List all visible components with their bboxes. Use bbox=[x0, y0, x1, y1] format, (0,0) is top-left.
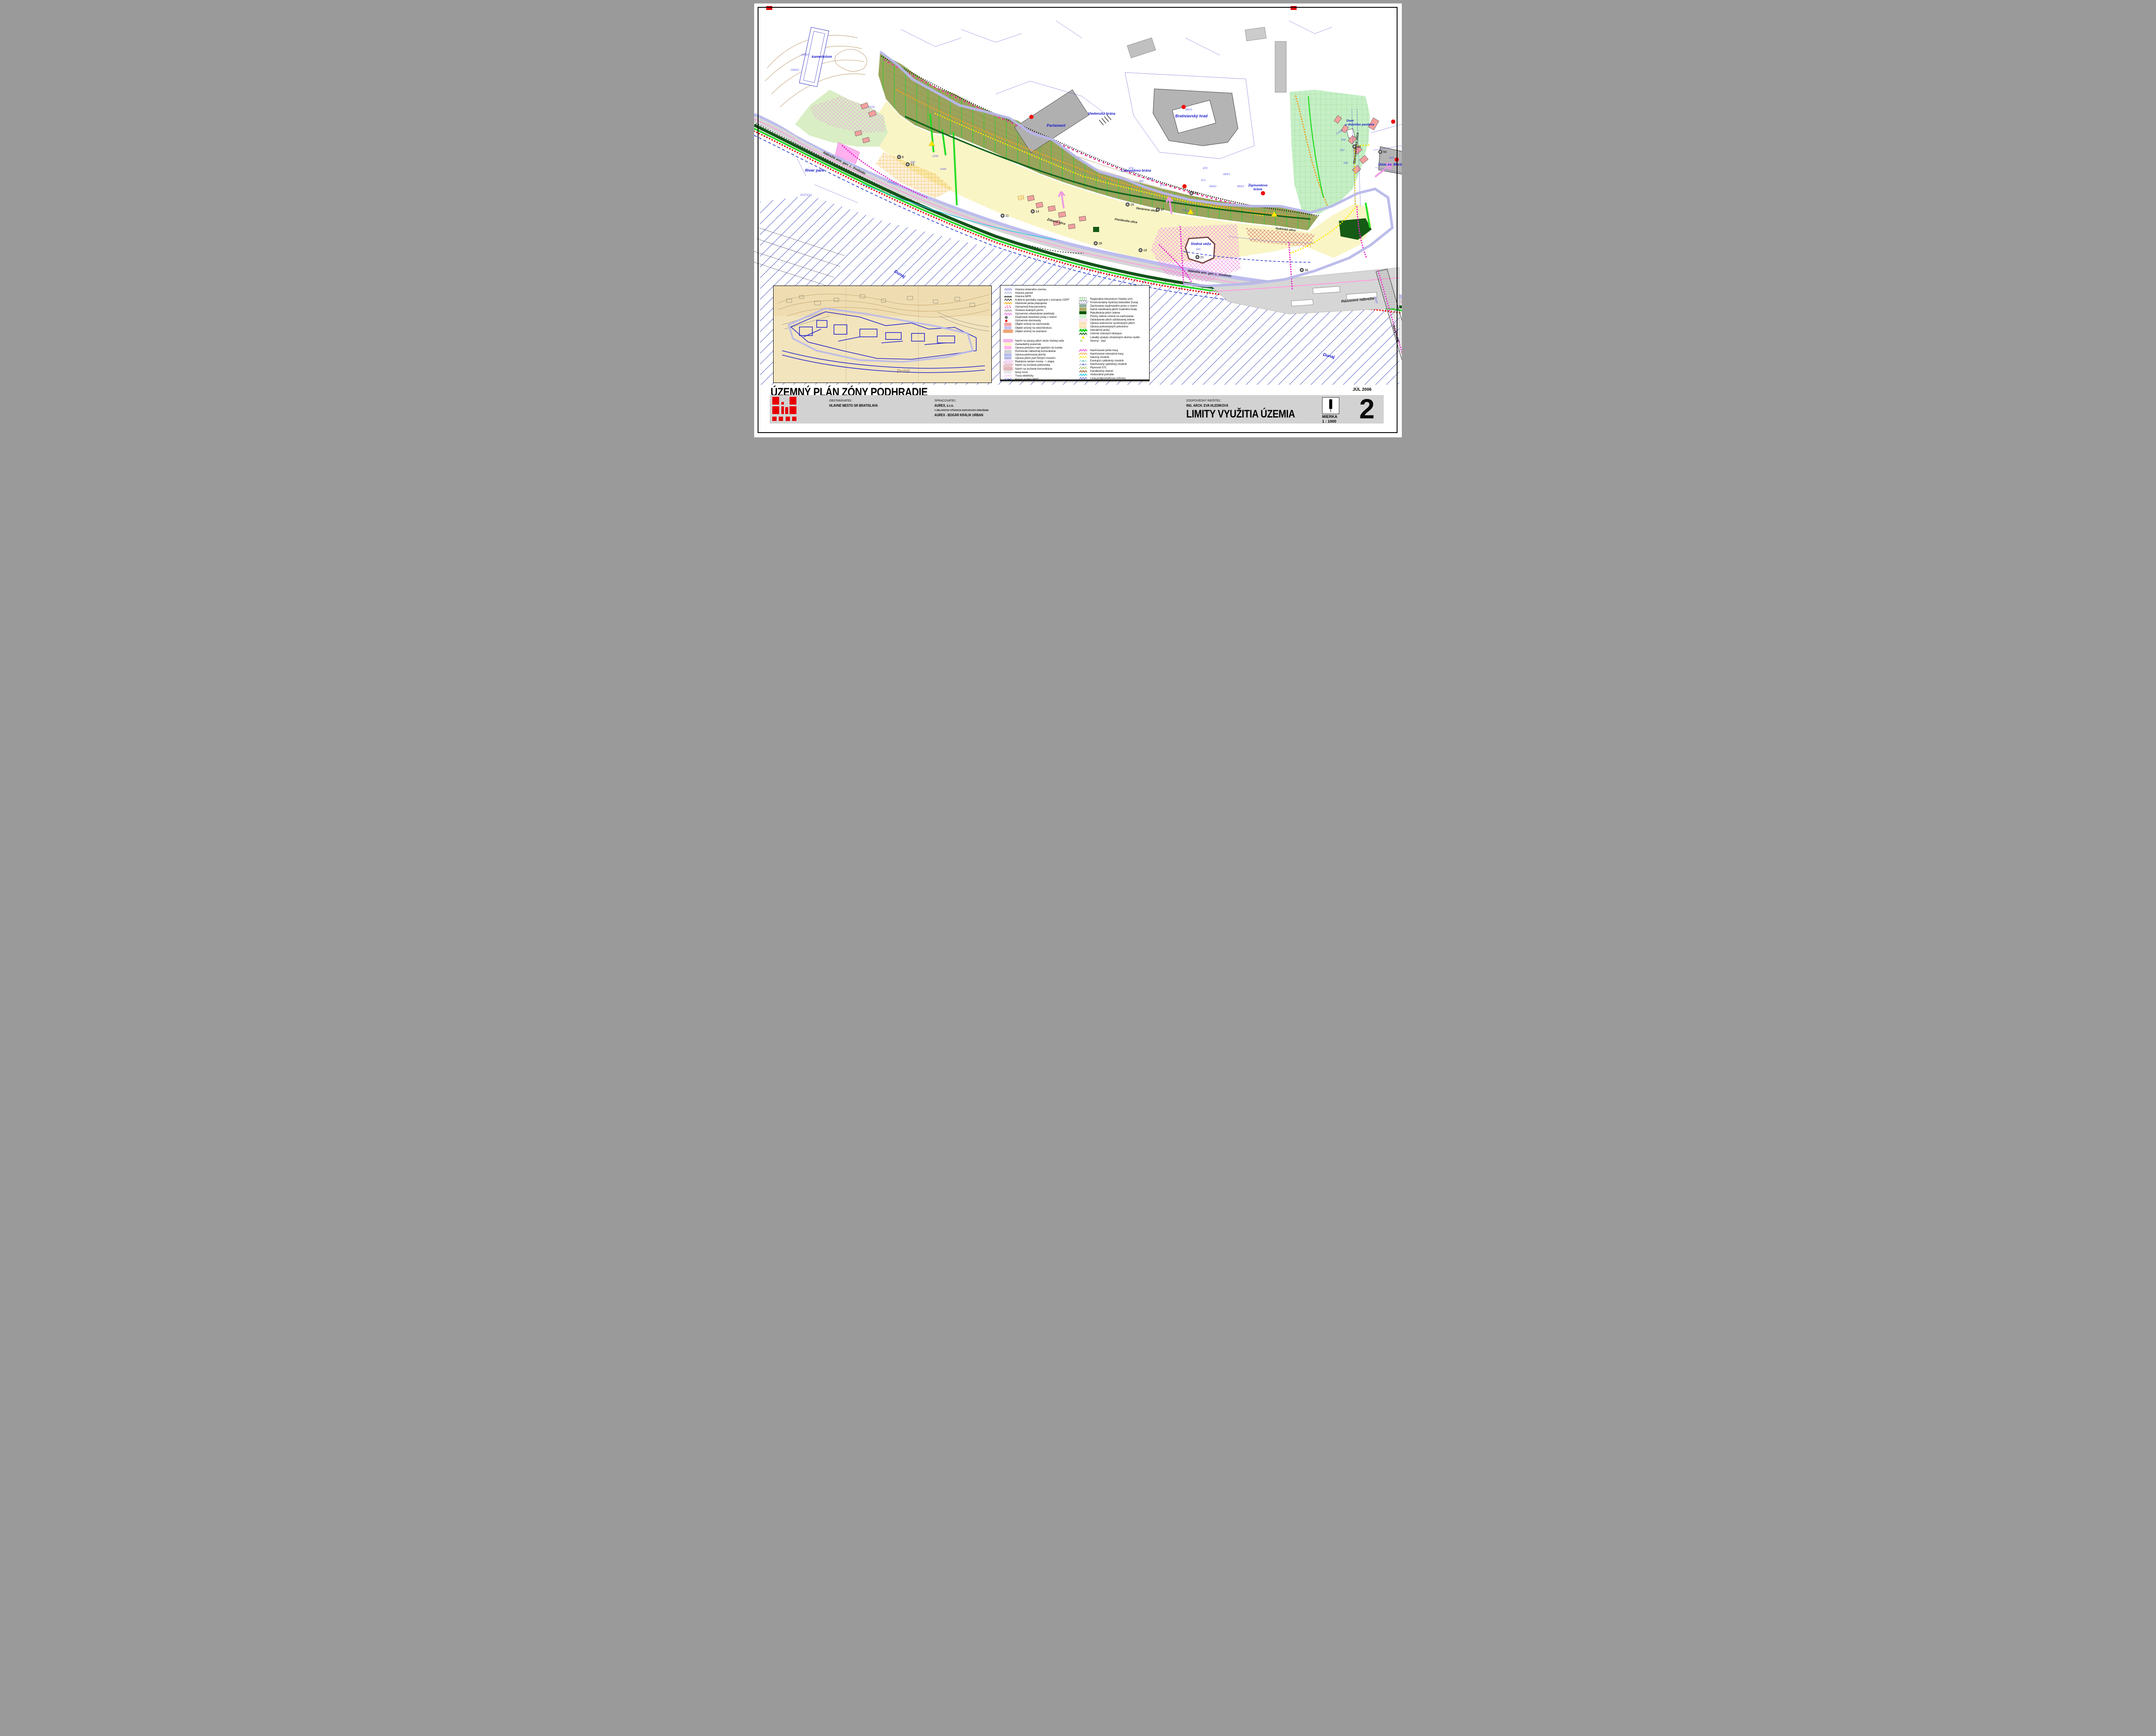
green-patch-small bbox=[1093, 227, 1099, 232]
legend-column-1: Hranica riešeného územiaHranice parcielH… bbox=[1003, 288, 1075, 381]
parcel-number: 860/1 bbox=[1185, 108, 1193, 111]
legend-swatch-tri bbox=[1078, 336, 1088, 339]
map-label: Parlament bbox=[1047, 123, 1066, 128]
legend-swatch-ring bbox=[1003, 316, 1013, 319]
dominant-dot bbox=[1029, 115, 1034, 119]
legend-item-label: Rekultivácia plôch zelene bbox=[1090, 311, 1120, 314]
legend-swatch-grid bbox=[1003, 370, 1013, 374]
legend-item-label: Územie vzácnych biotopov bbox=[1090, 332, 1122, 335]
legend-swatch-dotszz bbox=[1078, 352, 1088, 355]
legend-swatch-zzdot bbox=[1078, 359, 1088, 363]
scale-label: MIERKA bbox=[1322, 414, 1338, 419]
svg-text:21: 21 bbox=[1200, 255, 1204, 259]
legend-item-label: Návrh na zrušenie komunikácie bbox=[1015, 367, 1052, 370]
legend-item: Úprava poloverejných priestorov bbox=[1078, 325, 1147, 329]
map-label: u dobrého pastiera bbox=[1345, 122, 1374, 126]
contractor-value-2: AUREX - BOGÁR KRÁLIK URBAN bbox=[934, 413, 983, 417]
legend-item-label: Stromy - stav bbox=[1090, 339, 1106, 342]
legend-item: Lokality výskytu chránených druhov rastl… bbox=[1078, 336, 1147, 339]
legend-item-label: Hranica MPR bbox=[1015, 295, 1031, 298]
legend-item-label: Nosný systém MHD bbox=[1015, 378, 1039, 381]
legend-swatch-zzthin2 bbox=[1078, 377, 1088, 380]
legend-item-label: Úprava poloverejných priestorov bbox=[1090, 325, 1128, 328]
legend-item: Hranica riešeného územia bbox=[1003, 288, 1075, 291]
legend-item-label: Úprava priestoru nad vjazdom do tunela bbox=[1015, 346, 1062, 349]
parcel-number: 869/1 bbox=[1223, 173, 1231, 176]
legend-item-label: Významné dominanty bbox=[1015, 319, 1041, 322]
legend-swatch-zz bbox=[1003, 309, 1013, 312]
legend-column-2: Regionálne biocentrum Hradný vrchProvinc… bbox=[1078, 297, 1147, 380]
legend-item: Hranica MPR bbox=[1003, 295, 1075, 298]
map-label: brána bbox=[1253, 187, 1262, 191]
legend-swatch-dashrow bbox=[1003, 305, 1013, 309]
legend-swatch-trirow bbox=[1003, 295, 1013, 298]
legend-swatch-fill bbox=[1078, 311, 1088, 314]
legend-item-label: Navrhované pešie trasy bbox=[1090, 349, 1118, 352]
legend-item: Existujúci cyklistický chodník bbox=[1078, 359, 1147, 363]
parcel-number: 990 bbox=[911, 161, 915, 164]
legend-item: Historické pešia prepojenia bbox=[1003, 301, 1075, 305]
legend-item: Návrh na zrušenie komunikácie bbox=[1003, 367, 1075, 370]
legend-item: Stromy - stav bbox=[1078, 339, 1147, 342]
legend-swatch-dotszz bbox=[1078, 348, 1088, 352]
legend-swatch-vl bbox=[1078, 322, 1088, 325]
legend-item: Významné urbanistické priehľady bbox=[1003, 312, 1075, 316]
legend-item: Hranice parciel bbox=[1003, 291, 1075, 295]
legend-item: Navrhované pešie trasy bbox=[1078, 348, 1147, 352]
legend-item: Návrh na úpravy plôch okolo Vodnej veže bbox=[1003, 339, 1075, 342]
legend-swatch-zz bbox=[1003, 298, 1013, 301]
legend-swatch-xh bbox=[1003, 367, 1013, 370]
parcel-number: 596 bbox=[1344, 162, 1348, 165]
legend-item-label: Rozšírenie nábrežnej komunikácie bbox=[1015, 350, 1056, 353]
legend-item: Interakčné prvky bbox=[1078, 329, 1147, 332]
legend-item-label: Sústava skalných pivníc bbox=[1015, 309, 1044, 312]
legend-item-label: Odstránenie plôch udržiavanej zelene bbox=[1090, 318, 1134, 321]
legend-swatch-zzdash bbox=[1003, 374, 1013, 377]
legend-item-label: Plynovod STL bbox=[1090, 366, 1107, 369]
dominant-dot bbox=[1261, 191, 1265, 195]
legend-item-label: Plochy zelene určené na zachovanie bbox=[1090, 315, 1134, 318]
legend-item: Úprava plôch pod Novým mostom bbox=[1003, 357, 1075, 360]
legend-swatch-xh bbox=[1078, 318, 1088, 322]
legend-swatch-zzdash bbox=[1078, 366, 1088, 370]
legend-item: Zastaviteľný pozemok bbox=[1003, 342, 1075, 346]
legend-item: Sústava skalných pivníc bbox=[1003, 309, 1075, 312]
legend-item: Úprava extenzívne využívaných plôch bbox=[1078, 322, 1147, 325]
drawing-title: LIMITY VYUŽITIA ÚZEMIA bbox=[1186, 408, 1295, 421]
map-label: Leopoldova brána bbox=[1122, 169, 1151, 173]
svg-text:50: 50 bbox=[1383, 150, 1387, 154]
legend-swatch-zzdot bbox=[1078, 363, 1088, 366]
title-block: ÚZEMNÝ PLÁN ZÓNY PODHRADIE JÚL 2006 OBST… bbox=[754, 385, 1402, 437]
legend-swatch-dot bbox=[1003, 319, 1013, 323]
parcel-number: 1044 bbox=[940, 168, 946, 171]
parcel-number: 871 bbox=[1201, 179, 1206, 182]
parcel-number: 880 bbox=[1139, 180, 1144, 183]
legend-item-label: Významná línia panorámy bbox=[1015, 305, 1046, 308]
map-label: Žigmundova bbox=[1248, 183, 1268, 187]
legend-item-label: Provincionálny hydrický biokoridor Dunaj bbox=[1090, 301, 1138, 304]
svg-text:47: 47 bbox=[1161, 208, 1164, 212]
legend-swatch-fill bbox=[1078, 304, 1088, 308]
legend-item-label: Objekt určený na rekonštrukciu bbox=[1015, 326, 1052, 330]
legend-item-label: Regionálne biocentrum Hradný vrch bbox=[1090, 298, 1133, 301]
legend-item-label: Zaujímavé historické prvky v území bbox=[1015, 316, 1056, 319]
legend-item: Navrhovaný cyklistický chodník bbox=[1078, 363, 1147, 366]
responsible-label: ZODPOVEDNÝ RIEŠITEĽ: bbox=[1186, 399, 1221, 402]
svg-text:11: 11 bbox=[1006, 214, 1009, 218]
map-label: Viedenská brána bbox=[1088, 112, 1116, 116]
legend-swatch-zz bbox=[1078, 373, 1088, 377]
registration-mark bbox=[1291, 6, 1297, 10]
legend-item: Náučný chodník bbox=[1078, 355, 1147, 359]
legend-item-label: Objekt určený na zachovanie bbox=[1015, 323, 1050, 326]
legend-swatch-fill bbox=[1003, 326, 1013, 330]
legend-swatch-zz bbox=[1003, 288, 1013, 291]
legend-swatch-dotszz bbox=[1078, 355, 1088, 359]
map-label: Dom bbox=[1347, 119, 1354, 122]
map-label: Bratislavský hrad bbox=[1175, 114, 1208, 118]
parcel-number: 869/3 bbox=[1237, 185, 1244, 188]
legend-item: Územie vzácnych biotopov bbox=[1078, 332, 1147, 336]
legend-item-label: Zachovanie zaujímavého prvku v území bbox=[1090, 305, 1137, 308]
legend-swatch-fill bbox=[1003, 342, 1013, 346]
legend-item-label: Hranice parciel bbox=[1015, 292, 1033, 295]
parcel-number: 545 bbox=[1196, 248, 1201, 251]
numbered-marker: 8 bbox=[897, 155, 903, 159]
legend-item-label: Existujúci cyklistický chodník bbox=[1090, 359, 1124, 362]
legend-item: Nosný systém MHD bbox=[1003, 377, 1075, 381]
legend-swatch-fill bbox=[1003, 346, 1013, 349]
legend-item: Zaujímavé historické prvky v území bbox=[1003, 316, 1075, 319]
legend-item-label: Interakčné prvky bbox=[1090, 329, 1109, 332]
legend-swatch-fill bbox=[1078, 315, 1088, 318]
legend-item: Nutná rekultivácia plôch hradného brala bbox=[1078, 308, 1147, 311]
map-label: Dóm sv. Martina bbox=[1378, 162, 1402, 166]
legend-item-label: Návrh na zrušenie parkoviska bbox=[1015, 364, 1050, 367]
legend-item-label: Nový most bbox=[1015, 371, 1028, 374]
parcel-number: 1040 bbox=[932, 155, 939, 158]
parcel-number: 598 bbox=[1341, 138, 1346, 141]
svg-text:14: 14 bbox=[1036, 210, 1039, 213]
legend-swatch-zz bbox=[1078, 370, 1088, 373]
dominant-dot bbox=[1391, 119, 1395, 124]
parcel-number: 883 bbox=[1149, 177, 1153, 180]
legend-item: Zachovanie zaujímavého prvku v území bbox=[1078, 304, 1147, 308]
historic-map-inset: Dunaj bbox=[773, 286, 992, 383]
legend-item: Trasa električky bbox=[1003, 374, 1075, 377]
legend-swatch-ringsm bbox=[1078, 339, 1088, 342]
parcel-number: 22372/13 bbox=[799, 194, 812, 197]
legend-item-label: Návrh na úpravy plôch okolo Vodnej veže bbox=[1015, 339, 1064, 342]
parcel-number: 1018 bbox=[868, 106, 875, 109]
plan-sheet: 8131114164749182821384350 1669/31669/222… bbox=[754, 3, 1402, 437]
bratislava-logo bbox=[772, 397, 797, 422]
legend-item-label: Navrhované rekreačné trasy bbox=[1090, 352, 1124, 355]
map-label: kameňolom bbox=[812, 54, 832, 59]
legend-item-label: Kultúrne pamiatky zapísané v zozname ÚZP… bbox=[1015, 298, 1069, 301]
legend-item: Provincionálny hydrický biokoridor Dunaj bbox=[1078, 301, 1147, 304]
legend-swatch-zz bbox=[1003, 291, 1013, 295]
legend-item-label: Úprava extenzívne využívaných plôch bbox=[1090, 322, 1135, 325]
legend-item: Úprava priestoru nad vjazdom do tunela bbox=[1003, 346, 1075, 349]
legend-item: Plynovod STL bbox=[1078, 366, 1147, 370]
legend-item: Objekt určený na zachovanie bbox=[1003, 323, 1075, 326]
legend-item: Významná línia panorámy bbox=[1003, 305, 1075, 308]
svg-text:28: 28 bbox=[1099, 242, 1102, 245]
legend-item-label: Hranica riešeného územia bbox=[1015, 288, 1046, 291]
parcel-number: 1669/3 bbox=[801, 53, 809, 57]
legend-item-label: Línia protipovodňovej ochrany bbox=[1090, 377, 1125, 380]
legend-item: Navrhované rekreačné trasy bbox=[1078, 352, 1147, 355]
legend-swatch-zz2 bbox=[1003, 312, 1013, 316]
legend-swatch-zz bbox=[1078, 329, 1088, 332]
legend-item-label: Náučný chodník bbox=[1090, 356, 1109, 359]
legend-item: Úprava parkovacej plochy bbox=[1003, 353, 1075, 357]
legend-swatch-dl bbox=[1003, 360, 1013, 364]
legend-item-label: Trasa električky bbox=[1015, 374, 1034, 377]
registration-mark bbox=[766, 6, 772, 10]
legend-item-label: Navrhovaný cyklistický chodník bbox=[1090, 363, 1127, 366]
legend-item-label: Úprava parkovacej plochy bbox=[1015, 353, 1046, 356]
contractor-note: V ZMLUVNÝCH VZŤAHOCH ZASTUPUJÚCI ZDRUŽEN… bbox=[934, 409, 989, 412]
historic-map-drawing bbox=[774, 286, 991, 383]
legend-item: Odstránenie plôch udržiavanej zelene bbox=[1078, 318, 1147, 322]
legend-swatch-fill bbox=[1078, 308, 1088, 311]
legend-item-label: Nutná rekultivácia plôch hradného brala bbox=[1090, 308, 1137, 311]
legend-swatch-hl bbox=[1003, 357, 1013, 360]
svg-text:49: 49 bbox=[1194, 191, 1198, 195]
legend-item: Kultúrne pamiatky zapísané v zozname ÚZP… bbox=[1003, 298, 1075, 301]
svg-text:8: 8 bbox=[902, 155, 904, 159]
legend-swatch-filldl bbox=[1078, 301, 1088, 304]
client-label: OBSTARÁVATEĽ: bbox=[829, 399, 852, 402]
legend-item: Vodovodné potrubie bbox=[1078, 373, 1147, 377]
legend-swatch-dl bbox=[1003, 364, 1013, 367]
title-block-bar: OBSTARÁVATEĽ: HLAVNÉ MESTO SR BRATISLAVA… bbox=[770, 395, 1384, 424]
legend-item: Návrh na zrušenie parkoviska bbox=[1003, 364, 1075, 367]
parcel-number: 869/2 bbox=[1210, 185, 1217, 188]
legend-swatch-diam bbox=[1003, 339, 1013, 342]
legend-item: Rekultivácia plôch zelene bbox=[1078, 311, 1147, 314]
legend-swatch-zzdash bbox=[1003, 377, 1013, 381]
legend-item: Regionálne biocentrum Hradný vrch bbox=[1078, 297, 1147, 301]
parcel-number: 597 bbox=[1340, 149, 1345, 152]
svg-text:38: 38 bbox=[1305, 268, 1308, 272]
legend-item: Plochy zelene určené na zachovanie bbox=[1078, 314, 1147, 318]
legend-item: Významné dominanty bbox=[1003, 319, 1075, 323]
svg-text:18: 18 bbox=[1144, 248, 1147, 252]
client-value: HLAVNÉ MESTO SR BRATISLAVA bbox=[829, 404, 878, 408]
parcel-number: 469 bbox=[1389, 157, 1394, 160]
contractor-label: SPRACOVATEĽ: bbox=[934, 399, 956, 402]
map-label: Vodná veža bbox=[1191, 242, 1211, 246]
date-label: JÚL 2006 bbox=[1353, 387, 1372, 392]
legend-swatch-fill bbox=[1003, 350, 1013, 353]
legend-swatch-zz bbox=[1078, 332, 1088, 336]
legend-item-label: Historické pešia prepojenia bbox=[1015, 302, 1047, 305]
dominant-dot bbox=[1395, 157, 1399, 162]
legend-swatch-fillvl bbox=[1078, 297, 1088, 301]
legend-item: Nový most bbox=[1003, 370, 1075, 374]
legend-item: Rozšírenie nábrežnej komunikácie bbox=[1003, 350, 1075, 353]
scale-value: 1 : 1000 bbox=[1322, 419, 1336, 424]
legend-item-label: Významné urbanistické priehľady bbox=[1015, 312, 1054, 315]
legend-item: Línia protipovodňovej ochrany bbox=[1078, 377, 1147, 380]
legend-item-label: Vodovodné potrubie bbox=[1090, 373, 1114, 376]
svg-text:16: 16 bbox=[1131, 203, 1134, 207]
legend-item-label: Objekt určený na asanáciu bbox=[1015, 330, 1047, 333]
sheet-number: 2 bbox=[1350, 392, 1384, 424]
legend-swatch-zz bbox=[1003, 301, 1013, 305]
contractor-value: AUREX, s.r.o. bbox=[934, 404, 954, 408]
parcel-number: 870 bbox=[1203, 167, 1208, 170]
legend-item-label: Kanalizačný zberač bbox=[1090, 370, 1113, 373]
legend-item: Redukcia ramien mosta - I. etapa bbox=[1003, 360, 1075, 364]
legend-swatch-vl bbox=[1003, 353, 1013, 357]
parcel-number: 873 bbox=[1160, 184, 1165, 187]
north-arrow-icon bbox=[1322, 397, 1339, 414]
legend-item: Objekt určený na rekonštrukciu bbox=[1003, 326, 1075, 330]
legend: Hranica riešeného územiaHranice parcielH… bbox=[1000, 285, 1150, 381]
legend-item-label: Lokality výskytu chránených druhov rastl… bbox=[1090, 336, 1140, 339]
dominant-dot bbox=[1182, 184, 1187, 188]
legend-swatch-grid bbox=[1078, 325, 1088, 329]
legend-item: Kanalizačný zberač bbox=[1078, 370, 1147, 373]
legend-swatch-diam bbox=[1003, 330, 1013, 333]
legend-item: Objekt určený na asanáciu bbox=[1003, 330, 1075, 333]
map-label: River park bbox=[805, 168, 824, 173]
responsible-value: ING. ARCH. EVA HLEDÍKOVÁ bbox=[1186, 404, 1228, 408]
legend-item-label: Redukcia ramien mosta - I. etapa bbox=[1015, 360, 1054, 363]
parcel-number: 1669/2 bbox=[790, 69, 799, 72]
legend-swatch-fill bbox=[1003, 323, 1013, 326]
legend-item-label: Zastaviteľný pozemok bbox=[1015, 343, 1041, 346]
legend-item-label: Úprava plôch pod Novým mostom bbox=[1015, 357, 1056, 360]
